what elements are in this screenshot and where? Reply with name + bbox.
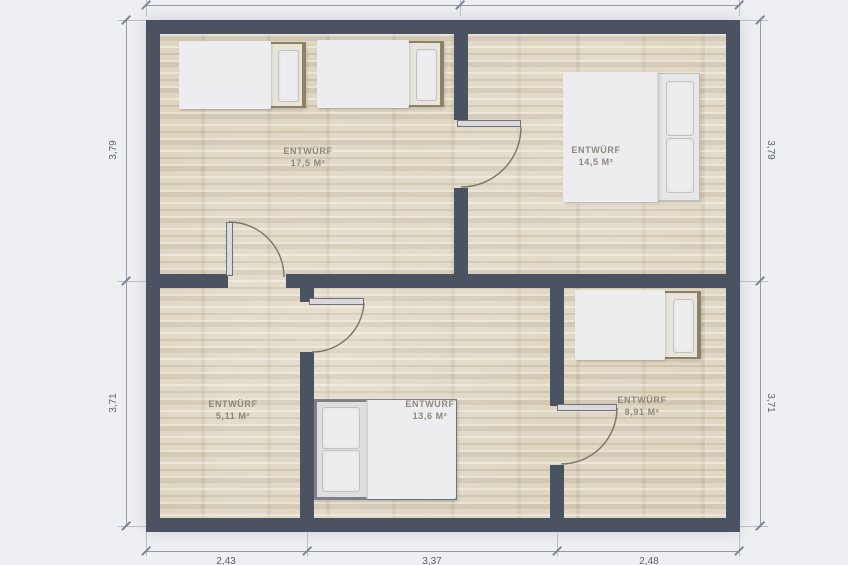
room-name: ENTWÜRF [536, 144, 656, 156]
extension-line [557, 532, 558, 556]
room-name: ENTWÜRF [582, 394, 702, 406]
extension-line [146, 532, 147, 556]
blanket [563, 72, 659, 202]
wall-divider-top-vertical-upper [454, 20, 468, 120]
dimension-line-top [146, 5, 740, 6]
room-area: 8,91 M² [582, 406, 702, 418]
wall-outer-bottom [146, 518, 740, 532]
double-bed-room2 [564, 73, 700, 201]
extension-line [740, 281, 768, 282]
headboard [697, 291, 701, 359]
room-label-3: ENTWÜRF 5,11 M² [173, 398, 293, 422]
wall-divider-bottomright-upper [550, 288, 564, 406]
extension-line [307, 532, 308, 556]
wall-divider-bottomright-lower [550, 465, 564, 518]
dimension-line-bottom [146, 551, 740, 552]
room-name: ENTWÜRF [173, 398, 293, 410]
single-bed-room5 [576, 291, 701, 359]
floor-plan-canvas: ENTWÜRF 17,5 M² ENTWÜRF 14,5 M² ENTWÜRF … [0, 0, 848, 565]
pillow [666, 138, 694, 193]
single-bed-1 [180, 42, 306, 108]
pillow [416, 49, 437, 101]
pillow [666, 81, 694, 136]
dimension-bottom-right: 2,48 [627, 556, 671, 565]
room-area: 5,11 M² [173, 410, 293, 422]
room-label-2: ENTWÜRF 14,5 M² [536, 144, 656, 168]
wall-outer-top [146, 20, 740, 34]
wall-divider-horizontal-right [286, 274, 740, 288]
extension-line [739, 532, 740, 556]
dimension-line-left [126, 20, 127, 526]
pillow [673, 299, 694, 353]
single-bed-2 [318, 41, 444, 107]
dimension-left-bottom: 3,71 [108, 381, 120, 425]
room-label-4: ENTWÜRF 13,6 M² [370, 398, 490, 422]
room-name: ENTWÜRF [248, 145, 368, 157]
wall-divider-horizontal-left [146, 274, 228, 288]
dimension-right-bottom: 3,71 [764, 381, 776, 425]
pillow [322, 407, 360, 449]
pillow [278, 50, 299, 102]
dimension-bottom-left: 2,43 [204, 556, 248, 565]
wall-divider-bottomleft-vertical [300, 352, 314, 518]
blanket [317, 40, 409, 108]
dimension-left-top: 3,79 [108, 128, 120, 172]
blanket [179, 41, 271, 109]
pillow [322, 450, 360, 492]
blanket [575, 290, 665, 360]
room-area: 14,5 M² [536, 156, 656, 168]
room-label-5: ENTWÜRF 8,91 M² [582, 394, 702, 418]
room-area: 13,6 M² [370, 410, 490, 422]
extension-line [740, 526, 768, 527]
wall-divider-top-vertical-lower [454, 188, 468, 274]
room-name: ENTWÜRF [370, 398, 490, 410]
headboard [440, 41, 444, 107]
room-area: 17,5 M² [248, 157, 368, 169]
door-leaf-bedroom1-hall [226, 222, 233, 276]
room-label-1: ENTWÜRF 17,5 M² [248, 145, 368, 169]
door-leaf-hall-bedroom3 [309, 298, 364, 305]
door-leaf-bedroom1-bedroom2 [457, 120, 521, 127]
extension-line [740, 20, 768, 21]
headboard [302, 42, 306, 108]
dimension-bottom-middle: 3,37 [410, 556, 454, 565]
dimension-line-right [760, 20, 761, 526]
dimension-right-top: 3,79 [764, 128, 776, 172]
